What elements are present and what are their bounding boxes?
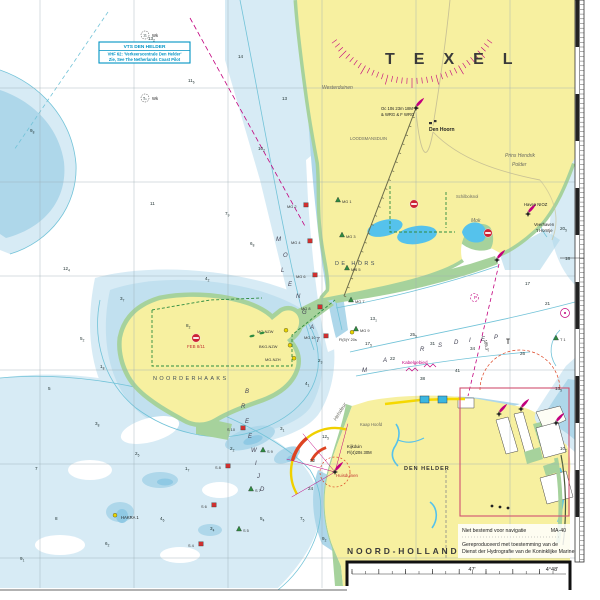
entry-prohibited-icon: [192, 334, 200, 342]
vts-info-box: VTS DEN HELDER VHF 62: 'Verkeerscentrale…: [99, 42, 190, 63]
chart-notes: Niet bestemd voor navigatie MA-40 Gerepr…: [458, 524, 575, 558]
buoy-symbol: [113, 513, 117, 517]
nautical-chart-texel-marsdiep: VTS DEN HELDER VHF 62: 'Verkeerscentrale…: [0, 0, 600, 600]
entry-prohibited-icon: [484, 229, 492, 237]
entry-prohibited-icon: [410, 200, 418, 208]
chart-canvas: VTS DEN HELDER VHF 62: 'Verkeerscentrale…: [0, 0, 600, 600]
